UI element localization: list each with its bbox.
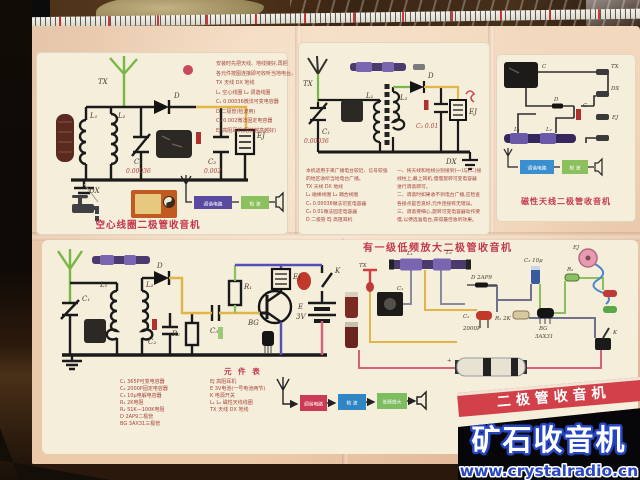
label-dx: DX [445, 158, 458, 166]
panel2-notes-right: 一、将天线和地线分别接到(一)与(二)接线柱上,戴上耳机,慢慢旋转可变电容器 进… [397, 168, 481, 225]
diode-icon [154, 100, 169, 114]
label-ej: EJ [292, 273, 302, 281]
variable-capacitor-photo [341, 100, 363, 122]
earphone-symbol [272, 269, 290, 289]
diode-icon [154, 271, 169, 285]
label-bg: BG [538, 326, 548, 332]
electrolytic-c3-photo [531, 266, 540, 284]
label-c3: C₃ [210, 327, 218, 335]
label-bg: BG [247, 319, 259, 327]
red-scribble [466, 91, 474, 102]
terminal-lugs [596, 69, 609, 141]
panel-ferrite-pictorial: C D C TX DX EJ L₁ L₂ 调谐电路 检 波 磁性天线二极管收音机 [496, 54, 636, 222]
panel-aircoil-radio: 调谐电路 检 波 TX L₁ L₂ C₁ 0.00036 C₂ 0.002 D … [36, 52, 288, 235]
wire [283, 390, 297, 404]
transistor-photo [262, 331, 274, 353]
variable-capacitor-photo [84, 319, 106, 343]
small-red-part [152, 319, 157, 330]
label-c1-value: 0.00036 [304, 138, 329, 145]
mini-block-diagram [504, 148, 602, 175]
panel2-notes-left: 本机适用于离广播电台较近、信号较强的地区收听当地电台广播。 TX 天线 DX 地… [306, 168, 388, 225]
label-tx: TX [611, 64, 620, 70]
label-e-value: 3V [296, 313, 306, 321]
earphone-icon [595, 159, 602, 175]
tx-antenna-part [363, 270, 377, 292]
label-d: D [156, 262, 163, 270]
battery-pack-photo [455, 358, 527, 376]
label-c2-value: 2000P [462, 326, 481, 332]
label-d: D [427, 72, 434, 80]
ferrite-rod-photo [504, 133, 576, 144]
antenna-icon [308, 56, 327, 74]
variable-capacitor-photo [377, 292, 403, 316]
label-c: C [542, 64, 547, 70]
block-tuning: 调谐电路 [203, 201, 222, 208]
panel1-title: 空心线圈二极管收音机 [95, 219, 200, 231]
earphone-photo [579, 249, 597, 267]
radio-photo [131, 190, 177, 218]
label-c1-value: 0.00036 [126, 168, 151, 175]
block-tuning: 调谐电路 [304, 401, 323, 408]
parts-list-right: EJ 高阻耳机E 3V电池(一号电池两节) K 电源开关L₁ L₂ 磁性天线线圈… [210, 379, 265, 414]
label-ej: EJ [611, 115, 619, 121]
radio-poster: 调谐电路 检 波 TX L₁ L₂ C₁ 0.00036 C₂ 0.002 D … [30, 26, 640, 464]
label-dx: DX [610, 86, 620, 92]
label-l2: L₂ [117, 112, 126, 120]
label-d: D 2AP9 [470, 275, 492, 281]
faucet-icon [72, 195, 99, 221]
block-tuning: 调谐电路 [527, 165, 546, 172]
label-d: D [173, 92, 180, 100]
resistor-r1-photo [513, 311, 529, 319]
earphone-symbol [450, 100, 466, 120]
amplifier-schematic: C₁ L₁ L₂ D C₂ C₃ R₁ R₂ BG EJ K E 3V [42, 243, 345, 373]
watermark-url: www.crystalradio.cn [460, 462, 638, 480]
watermark-title: 矿石收音机 [471, 423, 626, 457]
label-tx: TX [98, 78, 109, 86]
label-c2: C₂ 0.01 [416, 123, 438, 130]
label-c2: C₂ [463, 314, 469, 320]
small-green-part [218, 327, 223, 339]
ferrite-rod-photo [389, 259, 471, 271]
transistor-bg-photo [537, 308, 554, 324]
antenna-icon [110, 56, 137, 107]
label-r1: R₁ 2K [494, 316, 512, 322]
flower-mark [183, 65, 193, 75]
switch-photo [595, 328, 611, 350]
label-k: K [334, 267, 341, 275]
panel3-title: 磁性天线二极管收音机 [521, 196, 611, 206]
label-c1: C₁ [82, 295, 90, 303]
parts-table-title: 元 件 表 [224, 366, 262, 377]
panel1-notes: 安装时先把天线、地线接好,再把各元件按图连接即可收听当地电台。 TX 天线 DX… [216, 60, 296, 136]
terminal-green [603, 306, 617, 313]
label-l2: L₂ [445, 250, 452, 256]
label-dx: DX [88, 187, 101, 195]
ferrite-rod-photo [350, 62, 425, 72]
label-r2: R₂ [171, 330, 180, 338]
earphone-icon [276, 193, 283, 211]
diode-photo [552, 104, 563, 109]
label-ej: EJ [572, 245, 580, 251]
small-red-part [196, 132, 201, 144]
label-c3: C₃ 10μ [524, 258, 543, 264]
label-c2-value: 0.002 [204, 168, 221, 175]
coil-photo [56, 114, 74, 162]
label-l1: L₁ [513, 127, 520, 133]
resistor-r2-photo [565, 274, 579, 281]
label-c2: C₂ [148, 338, 156, 346]
label-l2: L₂ [545, 127, 552, 133]
antenna-icon [277, 377, 289, 390]
label-tx: TX [303, 80, 314, 88]
label-r2: R₂ [566, 267, 573, 273]
label-k: K [612, 330, 618, 336]
label-e: E [297, 303, 303, 311]
label-l1: L₁ [99, 281, 108, 289]
label-tx: TX [359, 263, 368, 269]
label-plus: + [447, 358, 452, 364]
antenna-icon [58, 249, 82, 303]
parts-list-left: C₁ 365P可变电容器C₂ 2000P固定电容器 C₃ 10μ电解电容器R₁ … [120, 379, 168, 428]
small-red-part [424, 100, 429, 110]
label-l2: L₂ [399, 94, 408, 102]
label-l1: L₁ [406, 251, 413, 257]
block-detector: 检 波 [569, 165, 580, 172]
ferrite-rod-photo [92, 255, 150, 265]
photo-of-radio-poster: 调谐电路 检 波 TX L₁ L₂ C₁ 0.00036 C₂ 0.002 D … [0, 0, 640, 480]
battery-cells-photo [345, 292, 358, 348]
label-l1: L₁ [365, 92, 374, 100]
diode-icon [410, 81, 424, 93]
label-l2: L₂ [145, 281, 154, 289]
label-d: D [553, 97, 559, 103]
ferrite-pictorial: C D C TX DX EJ L₁ L₂ 调谐电路 检 波 磁性天线二极管收音机 [496, 54, 636, 222]
label-c1: C₁ [322, 128, 330, 136]
panel5-title: 有一级低频放大二极管收音机 [363, 241, 513, 254]
label-c1: C₁ [397, 286, 403, 292]
terminal-red [603, 290, 617, 297]
label-l1: L₁ [89, 112, 98, 120]
block-detector: 检 波 [249, 201, 260, 208]
panel-ferrite-schematic: TX C₁ 0.00036 L₁ L₂ D C₂ 0.01 EJ DX 本机适用… [298, 42, 490, 235]
variable-capacitor-photo [504, 62, 538, 88]
label-c2: C₂ [208, 158, 216, 166]
capacitor-red [576, 109, 581, 120]
label-ej: EJ [468, 108, 478, 116]
label-r1: R₁ [243, 283, 252, 291]
table-shadow-left [0, 0, 32, 480]
label-bg-value: 3AX31 [535, 334, 553, 340]
label-c1: C₁ [134, 158, 142, 166]
